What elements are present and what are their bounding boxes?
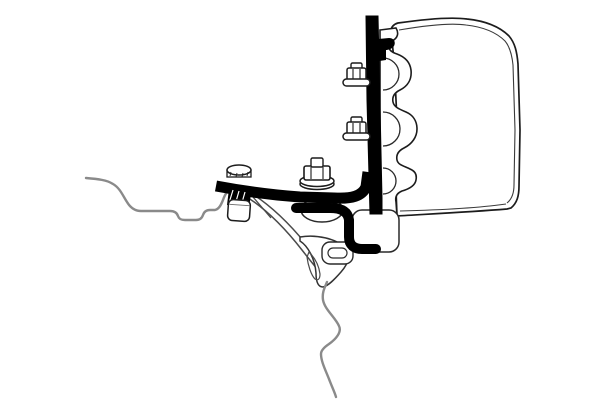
illustration-canvas [0,0,600,415]
spacer-sleeve [227,199,250,221]
dome-head-screw [227,165,251,177]
vehicle-body-contour-line [321,282,340,397]
lower-hex-bolt [343,117,370,140]
center-hex-bolt [300,158,334,190]
adapter-bracket-illustration [0,0,600,415]
vehicle-roof-contour-line [86,178,234,220]
upper-hex-bolt [343,63,370,86]
